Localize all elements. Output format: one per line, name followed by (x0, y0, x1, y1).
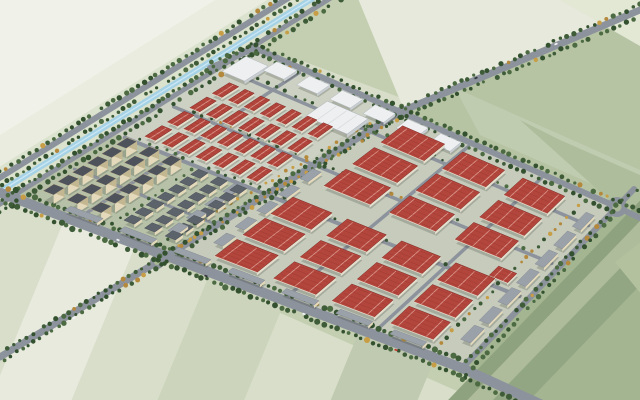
tree (482, 80, 485, 83)
tree (289, 180, 293, 184)
tree (565, 216, 568, 219)
tree (613, 202, 618, 207)
tree (213, 36, 218, 41)
tree (485, 350, 490, 355)
tree (219, 31, 224, 36)
tree (266, 81, 270, 85)
tree (288, 2, 293, 7)
tree (327, 306, 333, 312)
tree (183, 240, 188, 245)
tree (247, 44, 251, 48)
tree (178, 73, 181, 76)
tree (506, 394, 512, 400)
tree (33, 161, 36, 164)
tree (577, 182, 582, 187)
tree (191, 52, 194, 55)
tree (194, 61, 199, 66)
tree (190, 168, 194, 172)
tree (532, 300, 535, 303)
tree (43, 154, 48, 159)
tree (22, 170, 25, 173)
tree (100, 106, 104, 110)
tree (552, 52, 556, 56)
tree (437, 350, 442, 355)
tree (586, 37, 591, 42)
tree (223, 58, 228, 63)
tree (533, 163, 538, 168)
tree (96, 139, 99, 142)
tree (469, 354, 473, 358)
tree (153, 73, 158, 78)
tree (225, 29, 229, 33)
tree (272, 28, 276, 32)
tree (4, 178, 9, 183)
tree (195, 48, 200, 53)
tree (276, 187, 279, 190)
tree (521, 64, 525, 68)
tree (545, 169, 550, 174)
tree (306, 64, 309, 67)
tree (464, 359, 468, 363)
tree (103, 288, 107, 292)
tree (621, 199, 624, 202)
tree (189, 78, 194, 83)
tree (438, 366, 442, 370)
tree (456, 130, 461, 135)
tree (542, 237, 546, 241)
tree (459, 78, 463, 82)
tree (321, 9, 326, 14)
tree (320, 149, 323, 152)
tree (61, 321, 66, 326)
tree (492, 66, 496, 70)
tree (347, 331, 351, 335)
tree (233, 176, 236, 179)
tree (548, 54, 551, 57)
tree (339, 151, 342, 154)
tree (217, 48, 220, 51)
tree (92, 296, 95, 299)
tree (111, 127, 116, 132)
tree (257, 187, 260, 190)
tree (283, 89, 287, 93)
tree (68, 316, 72, 320)
tree (260, 45, 264, 49)
tree (74, 313, 77, 316)
tree (271, 179, 274, 182)
tree (272, 37, 277, 42)
tree (111, 227, 116, 232)
tree (76, 120, 81, 125)
tree (127, 103, 132, 108)
tree (341, 330, 345, 334)
tree (72, 151, 77, 156)
tree (61, 314, 66, 319)
tree (248, 294, 254, 300)
tree (444, 336, 449, 341)
tree (220, 225, 225, 230)
tree (109, 285, 113, 289)
tree (500, 392, 505, 397)
tree (218, 57, 221, 60)
tree (599, 31, 603, 35)
tree (604, 206, 609, 211)
tree (599, 220, 603, 224)
tree (21, 183, 26, 188)
tree (605, 29, 609, 33)
tree (154, 194, 157, 197)
industrial-park-rendering (0, 0, 640, 400)
tree (273, 182, 278, 187)
tree (347, 147, 350, 150)
tree (21, 155, 25, 159)
tree (32, 194, 38, 200)
tree (108, 240, 113, 245)
tree (583, 198, 588, 203)
tree (266, 30, 271, 35)
tree (267, 284, 271, 288)
tree (183, 174, 186, 177)
tree (281, 53, 285, 57)
tree (238, 213, 242, 217)
tree (119, 216, 122, 219)
tree (606, 194, 609, 197)
tree (51, 176, 55, 180)
tree (501, 149, 506, 154)
tree (593, 233, 598, 238)
tree (268, 43, 271, 46)
tree (255, 199, 259, 203)
tree (429, 118, 433, 122)
tree (291, 166, 294, 169)
tree (315, 157, 318, 160)
tree (479, 302, 483, 306)
tree (303, 165, 308, 170)
tree (376, 95, 380, 99)
tree (185, 54, 189, 58)
tree (297, 169, 301, 173)
tree (240, 48, 245, 53)
tree (136, 84, 140, 88)
tree (5, 186, 11, 192)
tree (559, 36, 562, 39)
tree (53, 316, 58, 321)
tree (0, 198, 4, 202)
tree (69, 226, 75, 232)
tree (31, 332, 35, 336)
tree (272, 12, 276, 16)
tree (31, 339, 36, 344)
tree (38, 158, 41, 161)
tree (198, 275, 203, 280)
tree (35, 148, 39, 152)
tree (67, 141, 71, 145)
tree (117, 95, 122, 100)
tree (110, 139, 116, 145)
tree (630, 204, 635, 209)
tree (172, 76, 176, 80)
tree (253, 43, 258, 48)
tree (474, 360, 479, 365)
tree (156, 99, 161, 104)
tree (28, 180, 31, 183)
tree (138, 138, 141, 141)
tree (146, 117, 152, 123)
tree (433, 130, 436, 133)
tree (225, 220, 230, 225)
tree (390, 101, 395, 106)
tree (437, 98, 441, 102)
tree (9, 355, 13, 359)
tree (58, 133, 62, 137)
tree (133, 208, 136, 211)
tree (312, 2, 317, 7)
tree (539, 283, 543, 287)
tree (314, 319, 320, 325)
tree (63, 170, 67, 174)
tree (113, 242, 118, 247)
tree (190, 243, 195, 248)
tree (331, 154, 334, 157)
tree (463, 88, 467, 92)
tree (50, 329, 53, 332)
tree (3, 359, 7, 363)
tree (222, 45, 225, 48)
tree (222, 284, 228, 290)
tree (141, 273, 146, 278)
tree (627, 194, 631, 198)
tree (162, 245, 167, 250)
tree (555, 265, 559, 269)
tree (513, 57, 517, 61)
tree (558, 261, 563, 266)
tree (12, 343, 15, 346)
tree (160, 96, 165, 101)
tree (278, 175, 280, 177)
tree (111, 98, 116, 103)
tree (237, 19, 242, 24)
tree (469, 135, 473, 139)
tree (148, 143, 151, 146)
tree (493, 390, 498, 395)
tree (201, 228, 204, 231)
tree (183, 67, 188, 72)
tree (586, 25, 589, 28)
tree (45, 140, 50, 145)
tree (451, 370, 456, 375)
tree (469, 87, 473, 91)
tree (3, 201, 7, 205)
tree (462, 131, 467, 136)
tree (453, 81, 457, 85)
tree (343, 149, 348, 154)
tree (37, 184, 42, 189)
tree (209, 60, 214, 65)
tree (283, 6, 286, 9)
tree (488, 156, 492, 160)
tree (27, 344, 30, 347)
tree (364, 128, 368, 132)
tree (175, 178, 178, 181)
tree (345, 138, 349, 142)
tree (182, 267, 187, 272)
tree (414, 100, 417, 103)
tree (502, 162, 506, 166)
tree (219, 217, 223, 221)
tree (608, 217, 613, 222)
tree (8, 202, 13, 207)
tree (190, 64, 194, 68)
tree (340, 142, 345, 147)
tree (537, 177, 541, 181)
tree (530, 174, 533, 177)
tree (89, 143, 93, 147)
tree (562, 268, 566, 272)
tree (162, 250, 167, 255)
tree (317, 161, 321, 165)
tree (571, 31, 576, 36)
tree (482, 140, 487, 145)
tree (557, 272, 560, 275)
tree (414, 356, 418, 360)
tree (442, 97, 446, 101)
tree (148, 76, 153, 81)
tree (46, 216, 51, 221)
tree (179, 244, 183, 248)
tree (123, 132, 127, 136)
tree (99, 119, 104, 124)
tree (33, 178, 36, 181)
tree (472, 74, 475, 77)
tree (540, 166, 545, 171)
tree (331, 75, 334, 78)
tree (144, 253, 149, 258)
tree (531, 294, 534, 297)
tree (139, 110, 143, 114)
tree (194, 273, 199, 278)
tree (602, 223, 607, 228)
tree (84, 299, 89, 304)
tree (117, 289, 121, 293)
tree (105, 144, 108, 147)
tree (322, 305, 328, 311)
tree (236, 211, 239, 214)
tree (340, 78, 344, 82)
tree (404, 114, 408, 118)
tree (104, 131, 109, 136)
tree (569, 251, 574, 256)
tree (60, 158, 65, 163)
tree (199, 231, 203, 235)
tree (403, 352, 408, 357)
tree (618, 24, 621, 27)
tree (287, 57, 291, 61)
tree (70, 125, 74, 129)
tree (558, 46, 563, 51)
tree (599, 192, 603, 196)
tree (333, 146, 337, 150)
tree (632, 5, 636, 9)
tree (465, 77, 469, 81)
tree (27, 151, 31, 155)
tree (78, 303, 83, 308)
tree (337, 87, 341, 91)
tree (566, 179, 570, 183)
tree (78, 229, 82, 233)
tree (318, 69, 321, 72)
tree (231, 209, 236, 214)
tree (421, 359, 425, 363)
tree (219, 282, 223, 286)
tree (527, 160, 531, 164)
tree (255, 296, 259, 300)
tree (261, 5, 265, 9)
tree (171, 102, 175, 106)
tree (242, 290, 246, 294)
tree (327, 73, 331, 77)
tree (285, 177, 288, 180)
tree (560, 174, 565, 179)
tree (484, 338, 488, 342)
tree (480, 152, 484, 156)
tree (376, 326, 382, 332)
tree (549, 181, 554, 186)
tree (57, 324, 61, 328)
tree (261, 298, 265, 302)
tree (159, 262, 164, 267)
tree (57, 173, 61, 177)
tree (547, 283, 551, 287)
tree (481, 355, 486, 360)
tree (346, 83, 349, 86)
tree (249, 26, 254, 31)
tree (291, 27, 296, 32)
tree (468, 312, 471, 315)
tree (32, 188, 38, 194)
tree (277, 178, 282, 183)
tree (631, 17, 636, 22)
tree (81, 157, 87, 163)
tree (275, 85, 278, 88)
tree (444, 352, 449, 357)
tree (360, 139, 364, 143)
tree (264, 182, 267, 185)
tree (496, 338, 501, 343)
tree (132, 99, 137, 104)
tree (255, 23, 259, 27)
tree (487, 387, 491, 391)
tree (322, 153, 327, 158)
tree (578, 28, 582, 32)
tree (534, 58, 538, 62)
tree (284, 19, 288, 23)
tree (308, 16, 313, 21)
tree (443, 124, 447, 128)
tree (415, 111, 420, 116)
tree (533, 287, 538, 292)
tree (13, 187, 19, 193)
tree (188, 272, 192, 276)
tree (81, 117, 86, 122)
tree (636, 189, 639, 192)
tree (383, 345, 388, 350)
tree (140, 204, 144, 208)
tree (278, 289, 282, 293)
tree (493, 146, 498, 151)
tree (272, 51, 276, 55)
tree (455, 355, 461, 361)
tree (297, 175, 300, 178)
